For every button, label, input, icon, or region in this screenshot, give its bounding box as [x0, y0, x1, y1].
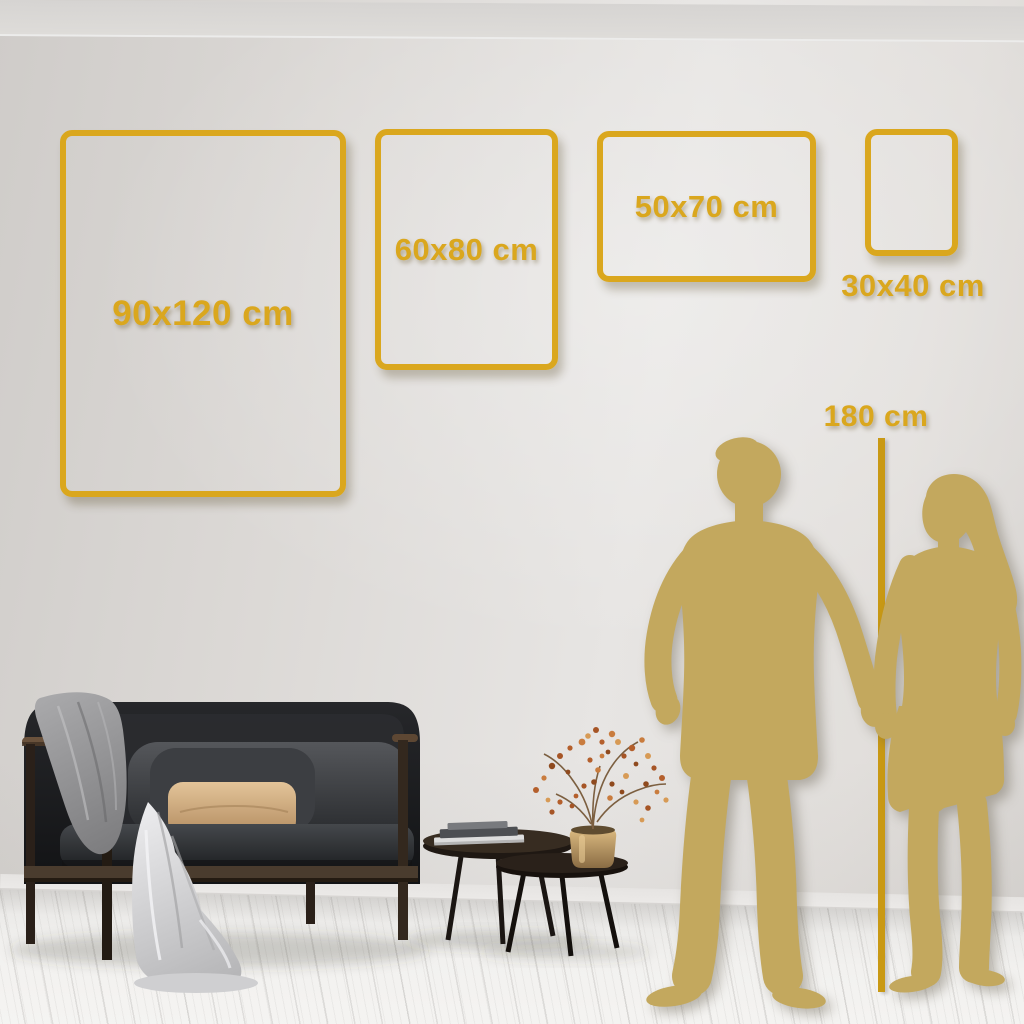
size-label-50x70: 50x70 cm: [635, 189, 779, 225]
size-label-60x80: 60x80 cm: [395, 232, 539, 268]
size-frame-90x120: 90x120 cm: [60, 130, 346, 497]
size-label-30x40: 30x40 cm: [823, 268, 1003, 304]
woman-silhouette: [875, 474, 1017, 995]
size-frame-50x70: 50x70 cm: [597, 131, 816, 282]
size-label-90x120: 90x120 cm: [112, 294, 294, 334]
size-frame-60x80: 60x80 cm: [375, 129, 558, 370]
size-frame-30x40: [865, 129, 958, 256]
man-silhouette: [645, 433, 889, 1012]
wall-art-size-guide-scene: 90x120 cm 60x80 cm 50x70 cm 30x40 cm 180…: [0, 0, 1024, 1024]
